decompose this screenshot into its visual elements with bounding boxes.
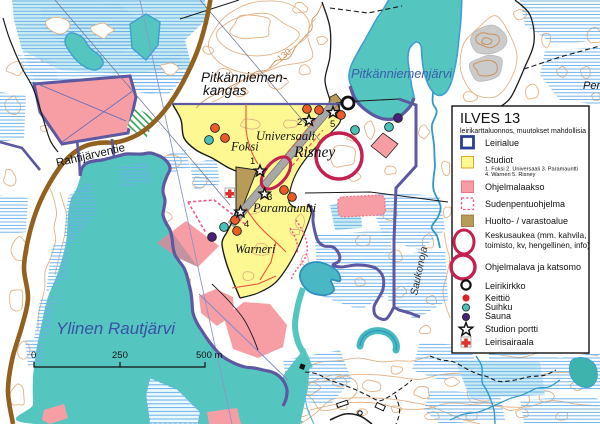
svg-text:Leirikirkko: Leirikirkko [485, 281, 526, 291]
svg-text:Paramauntti: Paramauntti [252, 201, 317, 215]
svg-text:Risney: Risney [293, 144, 335, 161]
svg-text:ILVES 13: ILVES 13 [460, 111, 520, 127]
svg-text:Studiot: Studiot [485, 155, 514, 165]
svg-text:Ylinen Rautjärvi: Ylinen Rautjärvi [56, 319, 176, 338]
svg-text:Foksi: Foksi [230, 140, 259, 154]
svg-text:Leirisairaala: Leirisairaala [485, 337, 534, 347]
svg-text:Keskusaukea (mm. kahvila,: Keskusaukea (mm. kahvila, [485, 230, 586, 240]
svg-text:0: 0 [31, 350, 36, 361]
svg-text:toimisto, kv, hengellinen, inf: toimisto, kv, hengellinen, info) [485, 241, 590, 250]
svg-text:Ohjelmalava ja katsomo: Ohjelmalava ja katsomo [485, 262, 581, 272]
svg-text:Per: Per [583, 80, 600, 92]
svg-text:Warneri: Warneri [235, 242, 276, 256]
svg-text:5: 5 [330, 119, 335, 130]
svg-text:Ohjelmalaakso: Ohjelmalaakso [485, 182, 545, 192]
svg-text:4: 4 [244, 219, 249, 230]
svg-text:4. Warneri 5. Risney: 4. Warneri 5. Risney [485, 172, 536, 178]
svg-text:Sudenpentuohjelma: Sudenpentuohjelma [485, 199, 565, 209]
svg-text:Leirialue: Leirialue [485, 138, 519, 148]
svg-text:Huolto- / varastoalue: Huolto- / varastoalue [485, 216, 568, 226]
svg-text:Studion portti: Studion portti [485, 324, 538, 334]
svg-text:250: 250 [112, 350, 128, 361]
svg-text:500 m: 500 m [196, 350, 222, 361]
svg-text:Sauna: Sauna [485, 311, 511, 321]
svg-text:2: 2 [297, 117, 302, 128]
svg-text:Pitkänniemenjärvi: Pitkänniemenjärvi [351, 66, 453, 81]
svg-text:1: 1 [250, 156, 255, 167]
svg-text:Universaali: Universaali [256, 129, 316, 143]
svg-text:leirikarttaluonnos, muutokset: leirikarttaluonnos, muutokset mahdollisi… [460, 128, 586, 135]
